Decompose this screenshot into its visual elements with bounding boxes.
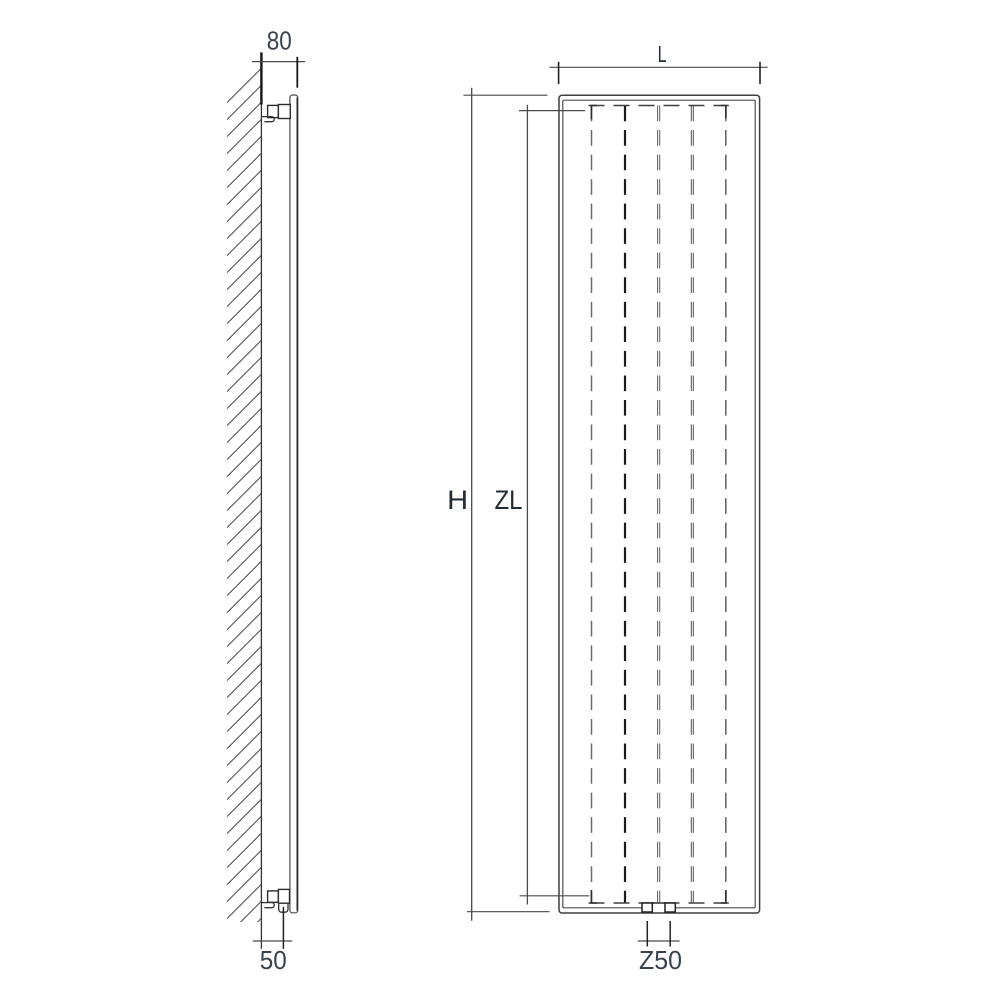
svg-text:ZL: ZL [495, 485, 523, 515]
svg-text:80: 80 [267, 26, 292, 56]
svg-text:L: L [658, 41, 667, 67]
svg-text:H: H [447, 485, 468, 515]
svg-text:50: 50 [260, 945, 287, 975]
svg-text:Z50: Z50 [639, 945, 682, 975]
